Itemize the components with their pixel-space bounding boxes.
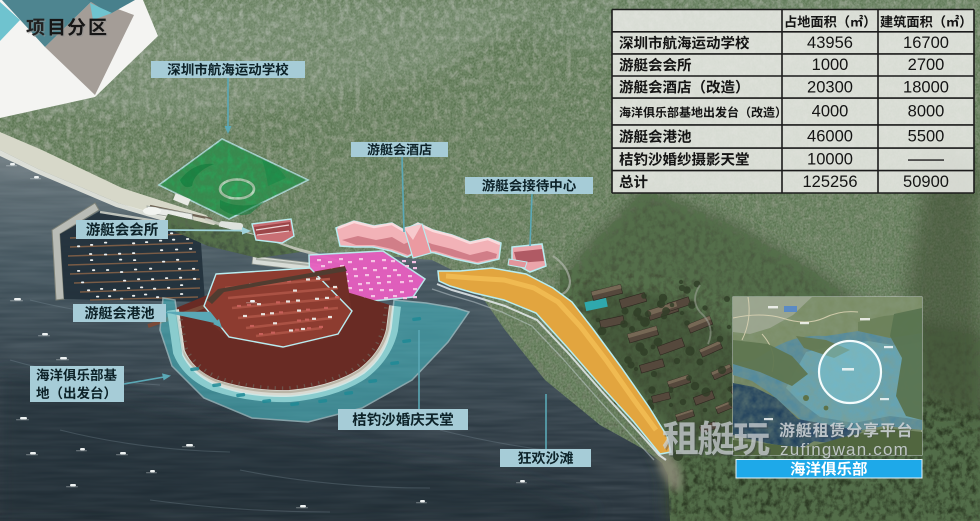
svg-text:46000: 46000 [807, 128, 853, 146]
svg-text:18000: 18000 [903, 78, 949, 96]
svg-text:2700: 2700 [908, 56, 945, 74]
svg-text:4000: 4000 [812, 103, 849, 121]
svg-text:20300: 20300 [807, 78, 853, 96]
svg-text:16700: 16700 [903, 34, 949, 52]
svg-text:zufingwan.com: zufingwan.com [780, 440, 909, 459]
svg-text:125256: 125256 [802, 173, 857, 191]
svg-text:43956: 43956 [807, 34, 853, 52]
svg-text:50900: 50900 [903, 173, 949, 191]
svg-text:5500: 5500 [908, 128, 945, 146]
svg-text:8000: 8000 [908, 103, 945, 121]
svg-text:1000: 1000 [812, 56, 849, 74]
svg-text:10000: 10000 [807, 151, 853, 169]
